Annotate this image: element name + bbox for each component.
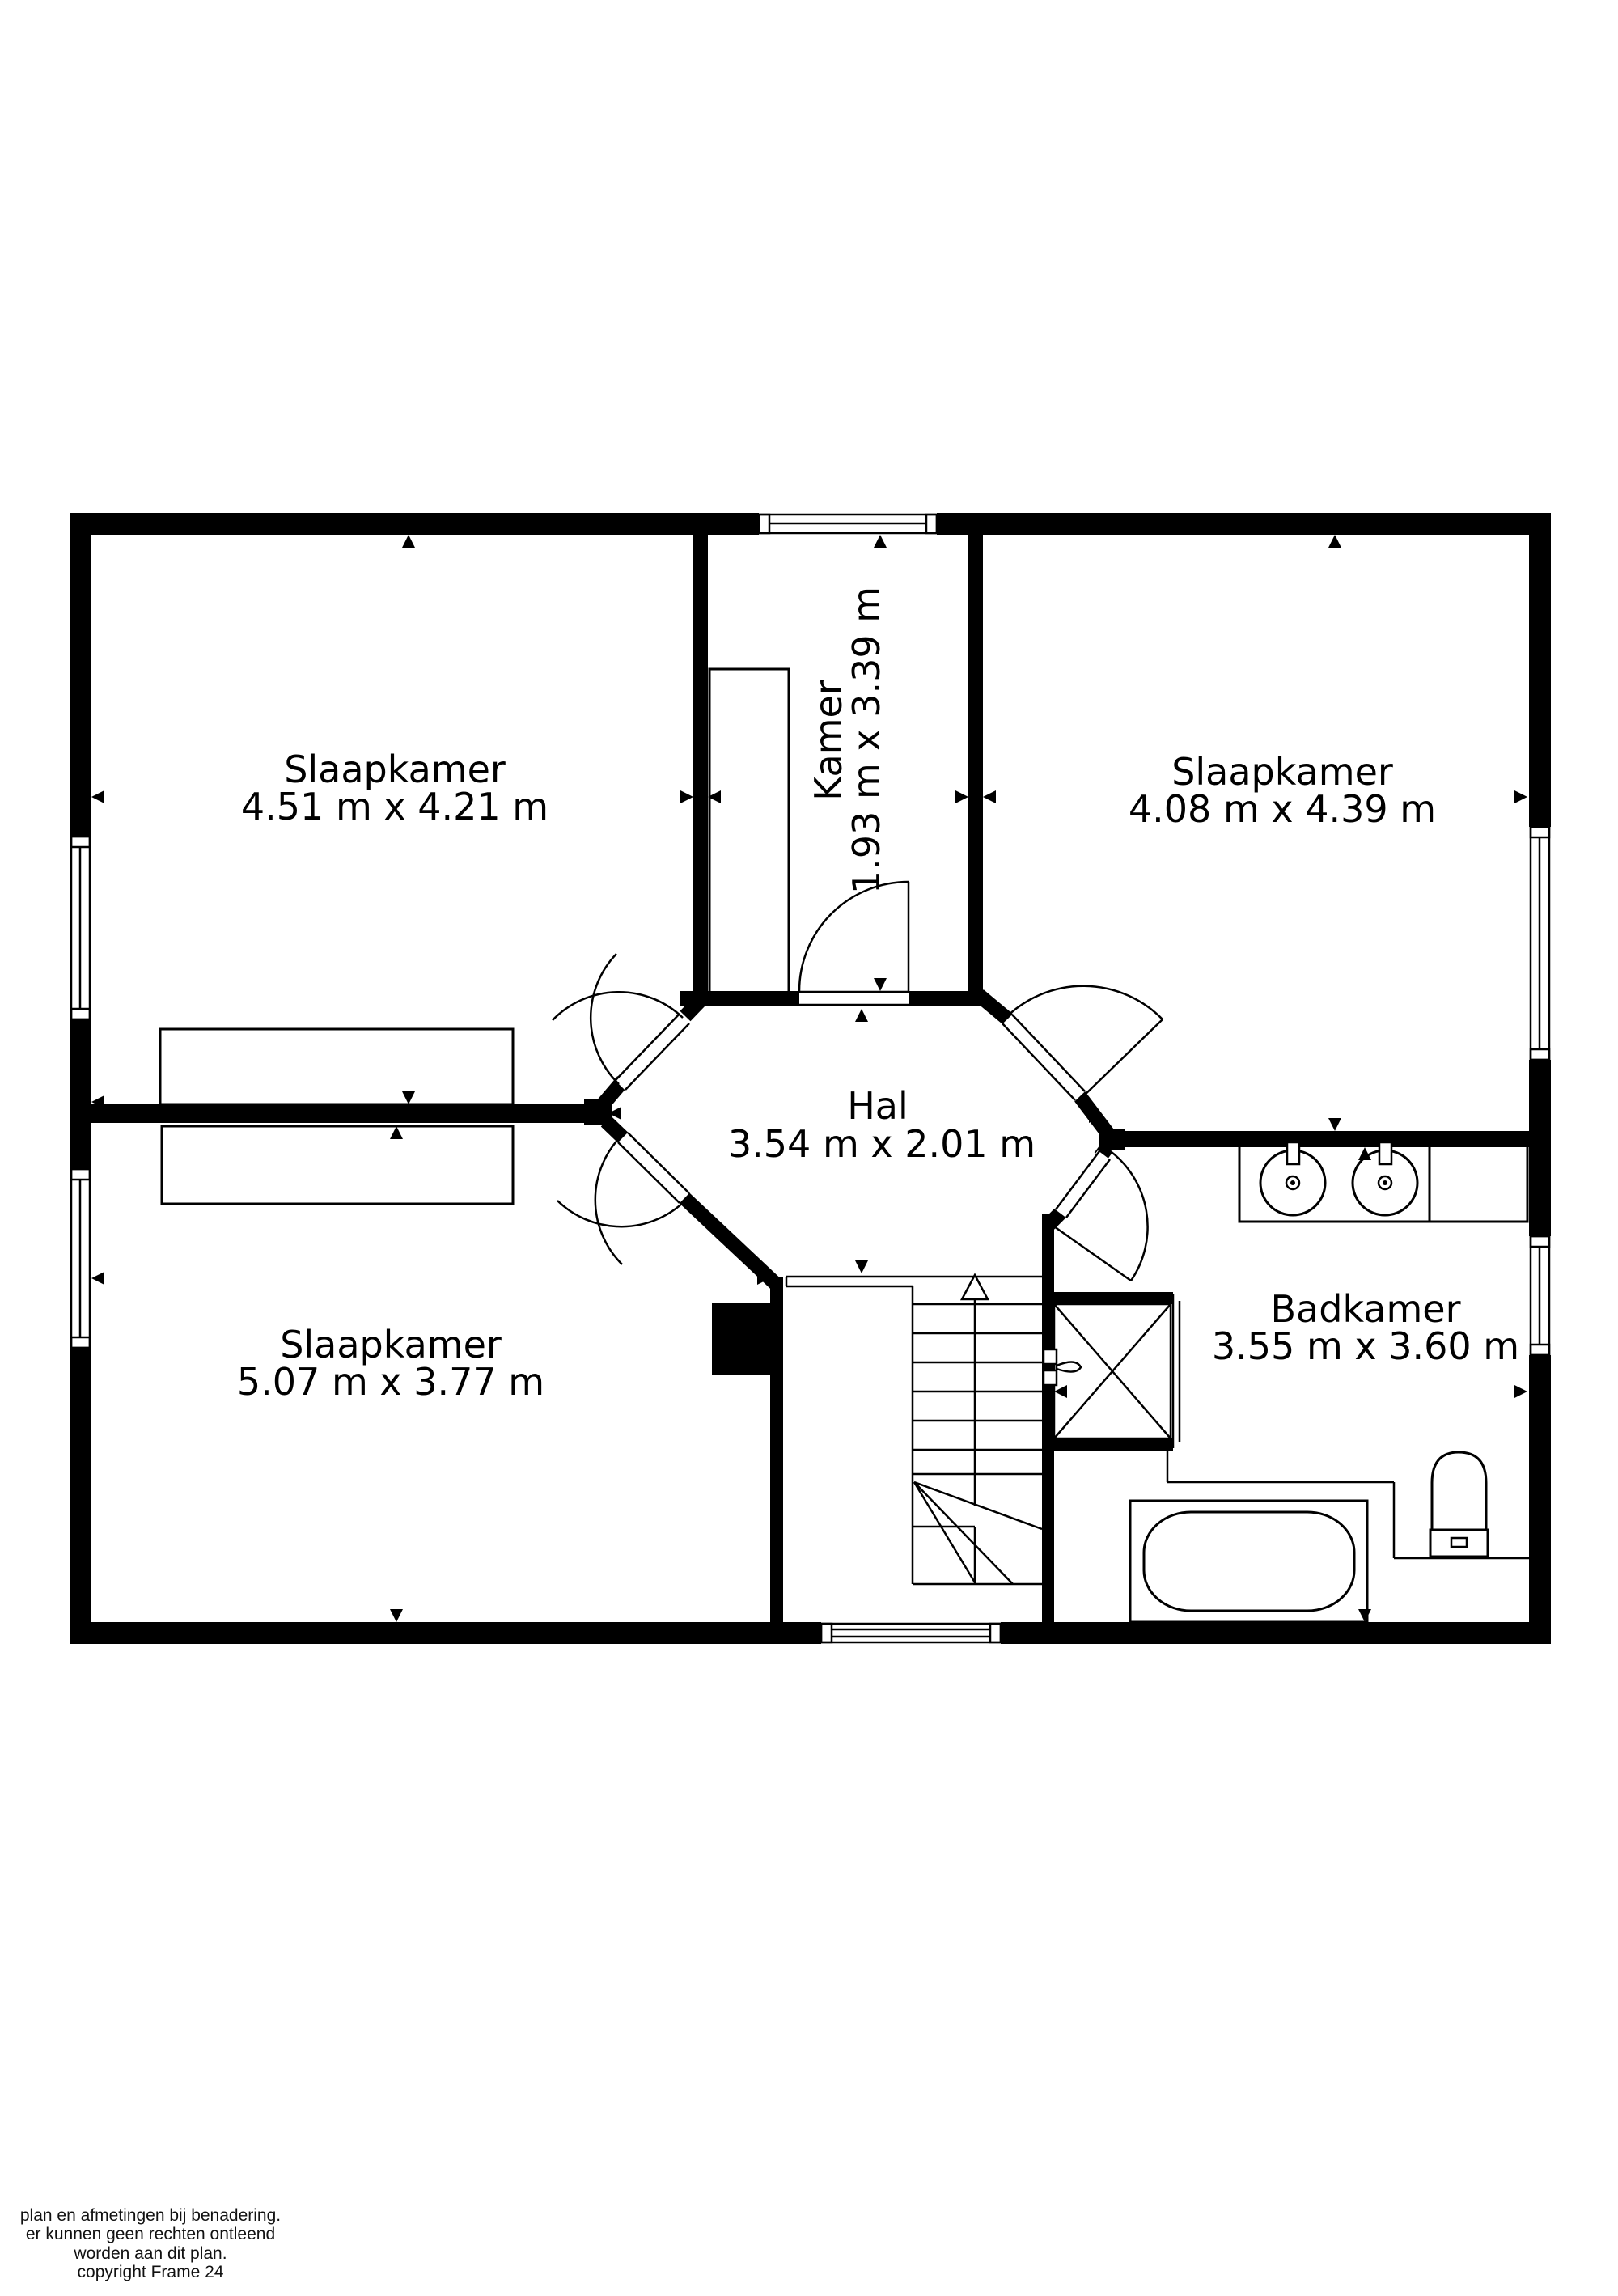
label-hal-name: Hal <box>847 1084 909 1128</box>
stairwell-west-wall <box>770 1277 783 1625</box>
dresser-bottom-left-room <box>162 1126 513 1204</box>
disclaimer: plan en afmetingen bij benadering. er ku… <box>20 2206 281 2281</box>
label-slaapkamer-tl-dims: 4.51 m x 4.21 m <box>241 785 549 828</box>
floor-plan-drawing: Slaapkamer 4.51 m x 4.21 m Kamer 1.93 m … <box>0 0 1618 2296</box>
hal-diag-tr-stub-a <box>979 995 1008 1019</box>
bathtub <box>1130 1501 1367 1622</box>
label-badkamer-dims: 3.55 m x 3.60 m <box>1212 1324 1519 1368</box>
label-slaapkamer-bl-dims: 5.07 m x 3.77 m <box>237 1360 544 1404</box>
hal-diag-bl-wall <box>683 1197 777 1285</box>
window-right-badkamer <box>1529 1236 1551 1355</box>
kamer-bottom-wall-right <box>909 991 983 1006</box>
disclaimer-line-1: plan en afmetingen bij benadering. <box>20 2206 281 2225</box>
stairwell-east-wall <box>1042 1214 1054 1625</box>
door-slaapkamer-bottom-left <box>557 1136 686 1264</box>
floor-plan-page: Slaapkamer 4.51 m x 4.21 m Kamer 1.93 m … <box>0 0 1618 2296</box>
dresser-top-left-room <box>160 1029 513 1104</box>
label-kamer-name: Kamer <box>807 680 850 801</box>
label-slaapkamer-tr-dims: 4.08 m x 4.39 m <box>1129 787 1436 831</box>
kamer-left-wall <box>693 530 708 1006</box>
faucet-left <box>1287 1142 1299 1164</box>
disclaimer-line-4: copyright Frame 24 <box>78 2263 224 2281</box>
disclaimer-line-3: worden aan dit plan. <box>73 2244 227 2263</box>
stairs <box>786 1275 1042 1584</box>
kamer-right-wall <box>968 530 983 1006</box>
chimney-block <box>712 1303 770 1375</box>
faucet-right <box>1379 1142 1391 1164</box>
disclaimer-line-2: er kunnen geen rechten ontleend <box>26 2225 275 2243</box>
window-top-kamer <box>759 513 937 535</box>
label-kamer-dims: 1.93 m x 3.39 m <box>845 587 888 894</box>
window-right-upper <box>1529 827 1551 1060</box>
window-left-upper <box>70 837 91 1019</box>
hal-diag-br-stub-b <box>1048 1212 1061 1225</box>
bathroom-platform <box>1167 1451 1529 1558</box>
toilet <box>1430 1452 1488 1557</box>
dividing-wall-left <box>81 1104 596 1123</box>
wardrobe-kamer <box>709 669 789 1003</box>
shower-top-wall <box>1054 1292 1173 1304</box>
window-bottom <box>821 1622 1001 1644</box>
shower-bottom-wall <box>1054 1438 1173 1451</box>
door-kamer <box>799 882 909 991</box>
toilet-button <box>1451 1538 1467 1547</box>
door-slaapkamer-top-left <box>553 954 683 1084</box>
shower <box>1044 1294 1180 1448</box>
stairs-winder <box>913 1482 1042 1584</box>
window-left-lower <box>70 1169 91 1348</box>
label-hal-dims: 3.54 m x 2.01 m <box>728 1122 1036 1166</box>
washbasin-counter <box>1239 1142 1527 1222</box>
